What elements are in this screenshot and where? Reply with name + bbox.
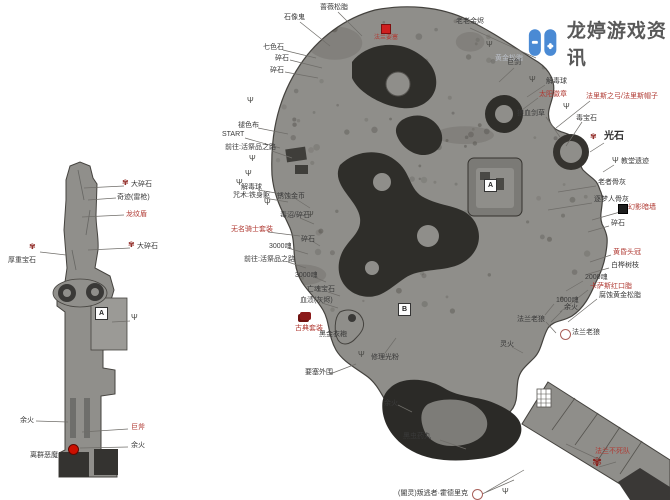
- item-pickup-icon: Ψ: [307, 211, 314, 219]
- map-label: 法兰要塞: [374, 35, 398, 41]
- map-label: 碎石: [301, 236, 315, 243]
- item-pickup-icon: Ψ: [563, 103, 570, 111]
- map-label: 解毒球: [241, 184, 262, 191]
- creature-icon: ✾: [128, 241, 135, 249]
- map-label: 余火: [384, 400, 398, 407]
- map-label: 逐梦人骨灰: [594, 196, 629, 203]
- map-label: 离群恶魔: [30, 452, 58, 459]
- map-label: 3000魂: [295, 272, 318, 279]
- item-pickup-icon: Ψ: [249, 155, 256, 163]
- map-label: 余火: [131, 442, 145, 449]
- map-label: 无名骑士套装: [231, 226, 273, 233]
- map-label: 3000魂: [269, 243, 292, 250]
- map-label: 碎石: [611, 220, 625, 227]
- map-label: 前往:活祭品之路: [225, 144, 276, 151]
- map-label: 锈蚀金币: [277, 193, 305, 200]
- hidden-wall-marker: [618, 204, 628, 214]
- map-label: 腐蚀黄金松脂: [599, 292, 641, 299]
- npc-circle-marker: [560, 329, 571, 340]
- map-label: 碎石: [270, 67, 284, 74]
- map-label: 要塞外围: [305, 369, 333, 376]
- map-label: 幻影暗墙: [628, 204, 656, 211]
- map-label: 厚重宝石: [8, 257, 36, 264]
- map-label: 黄昏头冠: [613, 249, 641, 256]
- watermark-logo: 龙婷游戏资讯: [528, 16, 670, 70]
- map-label: 光石: [604, 132, 624, 142]
- map-label: 白桦树枝: [611, 262, 639, 269]
- map-label: 毒沼/碎石: [280, 212, 310, 219]
- map-label: 1000魂: [556, 297, 579, 304]
- map-label: 碎石: [275, 55, 289, 62]
- map-label: 亡魂宝石: [307, 286, 335, 293]
- map-label: 余火: [564, 304, 578, 311]
- map-label: 巨剑: [507, 59, 521, 66]
- map-label: START: [222, 131, 244, 138]
- logo-text: 龙婷游戏资讯: [567, 16, 670, 70]
- item-pickup-icon: Ψ: [247, 97, 254, 105]
- item-pickup-icon: Ψ: [264, 199, 271, 207]
- map-label: (闇灵)叛逃者·霍德里克: [398, 490, 468, 497]
- map-label: 老老余烬: [456, 18, 484, 25]
- map-label: 卡萨斯红口脂: [590, 283, 632, 290]
- creature-icon: ✾: [29, 243, 36, 251]
- map-canvas: 大碎石奇迹(雷枪)龙纹盾大碎石厚重宝石余火巨斧余火离群恶魔石像鬼蔷薇松脂法兰要塞…: [0, 0, 670, 500]
- creature-icon: ✾: [590, 133, 597, 141]
- map-label: 太阳徽章: [539, 91, 567, 98]
- map-label: 法兰不死队: [595, 448, 630, 455]
- map-label: 老者骨灰: [598, 179, 626, 186]
- map-label: 法兰老狼: [572, 329, 600, 336]
- map-label: 解毒球: [546, 78, 567, 85]
- map-label: 教堂遗迹: [621, 158, 649, 165]
- map-ref-box: B: [398, 303, 411, 316]
- map-label: 黑金衣袍: [319, 331, 347, 338]
- item-pickup-icon: Ψ: [236, 179, 243, 187]
- item-pickup-icon: Ψ: [245, 170, 252, 178]
- map-label: 蔷薇松脂: [320, 4, 348, 11]
- bonfire-marker: [381, 24, 391, 34]
- map-label: 大碎石: [131, 181, 152, 188]
- map-label: 修理光粉: [371, 354, 399, 361]
- creature-icon: ✾: [122, 179, 129, 187]
- treasure-cluster-marker: [300, 312, 311, 320]
- map-label: 狼血剑草: [517, 110, 545, 117]
- map-label: 灵火: [500, 341, 514, 348]
- map-ref-box: A: [484, 179, 497, 192]
- map-label: 法兰老狼: [517, 316, 545, 323]
- map-label: 血渍(灰烬): [300, 297, 333, 304]
- map-label: 黑虫药丸: [403, 433, 431, 440]
- map-label: 法里斯之弓/法里斯帽子: [586, 93, 658, 100]
- item-pickup-icon: Ψ: [486, 41, 493, 49]
- boss-dot-marker: [68, 444, 79, 455]
- item-pickup-icon: Ψ: [612, 157, 619, 165]
- map-label: 褪色布: [238, 122, 259, 129]
- creature-icon: ✾: [592, 456, 602, 468]
- map-label: 巨斧: [131, 424, 145, 431]
- map-label: 大碎石: [137, 243, 158, 250]
- annotation-layer: 大碎石奇迹(雷枪)龙纹盾大碎石厚重宝石余火巨斧余火离群恶魔石像鬼蔷薇松脂法兰要塞…: [0, 0, 670, 500]
- item-pickup-icon: Ψ: [502, 488, 509, 496]
- map-label: 毒宝石: [576, 115, 597, 122]
- map-label: 奇迹(雷枪): [117, 194, 150, 201]
- npc-circle-marker: [472, 489, 483, 500]
- item-pickup-icon: Ψ: [358, 351, 365, 359]
- item-pickup-icon: Ψ: [529, 76, 536, 84]
- map-label: 余火: [20, 417, 34, 424]
- item-pickup-icon: Ψ: [131, 314, 138, 322]
- map-label: 石像鬼: [284, 14, 305, 21]
- map-label: 前往:活祭品之路: [244, 256, 295, 263]
- map-label: 七色石: [263, 44, 284, 51]
- map-label: 2000魂: [585, 274, 608, 281]
- map-ref-box: A: [95, 307, 108, 320]
- logo-icon: [528, 26, 559, 60]
- map-label: 龙纹盾: [126, 211, 147, 218]
